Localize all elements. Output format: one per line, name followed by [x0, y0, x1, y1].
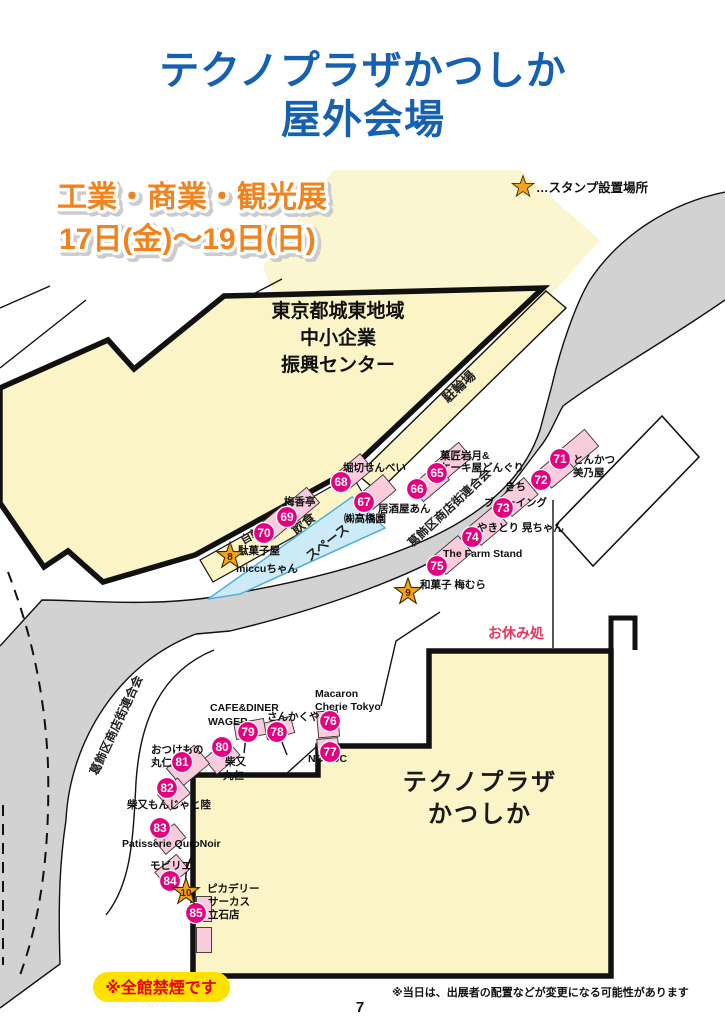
label-picadilly-2: サーカス: [208, 896, 250, 908]
svg-text:65: 65: [430, 466, 444, 480]
badge-68: 68: [331, 472, 352, 493]
svg-text:82: 82: [160, 781, 174, 795]
page-number: 7: [356, 999, 364, 1016]
label-patisserie: Patisserie QuroNoir: [122, 838, 221, 850]
label-monja: 柴又もんじゃと陸: [126, 798, 211, 811]
label-yakitori: やきとり 晃ちゃん: [477, 522, 564, 534]
label-tonkatsu-1: とんかつ: [573, 454, 615, 466]
badge-85: 85: [186, 903, 207, 924]
svg-text:68: 68: [334, 475, 348, 489]
shinko-label-1: 東京都城東地域: [271, 299, 404, 322]
label-umemura: 和菓子 梅むら: [419, 578, 486, 591]
stamp-star-9: 9: [395, 578, 422, 603]
badge-76: 76: [320, 711, 341, 732]
svg-text:71: 71: [553, 452, 567, 466]
svg-text:81: 81: [175, 755, 189, 769]
stamp-10-number: 10: [180, 888, 192, 899]
badge-73: 73: [493, 498, 514, 519]
svg-text:67: 67: [357, 495, 371, 509]
badge-78: 78: [267, 722, 288, 743]
badge-66: 66: [407, 479, 428, 500]
step-outline: [611, 618, 635, 650]
badge-74: 74: [462, 527, 483, 548]
badge-80: 80: [212, 737, 233, 758]
label-horikiri: 堀切せんべい: [343, 461, 406, 474]
label-kasho-2: ケーキ屋どんぐり: [440, 461, 524, 474]
svg-text:76: 76: [323, 714, 337, 728]
booth-extra: [197, 928, 212, 953]
no-smoking-text: ※全館禁煙です: [105, 978, 217, 997]
road-line-topleft-2: [0, 286, 50, 308]
label-shibamata-2: 丸仁: [222, 769, 244, 782]
svg-text:77: 77: [323, 745, 337, 759]
event-heading-line2: 17日(金)～19日(日): [59, 222, 316, 256]
technoplaza-building: [193, 651, 611, 976]
label-kasho-1: 菓匠岩月&: [439, 449, 490, 462]
shinko-label-3: 振興センター: [281, 353, 395, 376]
label-kichi-1: きち: [505, 481, 526, 493]
footer-note: ※当日は、出展者の配置などが変更になる可能性があります: [392, 985, 689, 999]
rest-area-label: お休み処: [488, 625, 545, 641]
badge-72: 72: [531, 470, 552, 491]
page-title-line1: テクノプラザかつしか: [159, 49, 567, 93]
event-heading-line1: 工業・商業・観光展: [57, 180, 327, 214]
badge-67: 67: [354, 492, 375, 513]
label-picadilly-3: 立石店: [208, 908, 240, 921]
svg-text:80: 80: [215, 740, 229, 754]
svg-text:74: 74: [465, 530, 479, 544]
badge-71: 71: [550, 449, 571, 470]
badge-70: 70: [254, 523, 275, 544]
svg-text:72: 72: [534, 473, 548, 487]
svg-text:70: 70: [257, 526, 271, 540]
label-takahashi: ㈱高橋園: [344, 512, 386, 525]
label-macaron-1: Macaron: [315, 688, 358, 700]
badge-77: 77: [320, 742, 341, 763]
label-tonkatsu-2: 美乃屋: [573, 466, 605, 479]
label-farm-stand: The Farm Stand: [443, 548, 522, 560]
badge-83: 83: [150, 818, 171, 839]
svg-text:66: 66: [410, 482, 424, 496]
label-otsukemono-2: 丸仁: [150, 756, 172, 769]
stamp-8-number: 8: [227, 552, 233, 563]
badge-79: 79: [238, 722, 259, 743]
svg-text:73: 73: [496, 501, 510, 515]
event-map-page: 葛飾区商店街連合会 葛飾区商店街連合会 駐輪場 東京都城東地域 中小企業 振興セ…: [0, 0, 725, 1024]
stamp-legend-text: …スタンプ設置場所: [536, 180, 649, 195]
page-title-line2: 屋外会場: [281, 98, 445, 142]
svg-text:78: 78: [270, 725, 284, 739]
svg-text:79: 79: [241, 725, 255, 739]
badge-81: 81: [172, 752, 193, 773]
label-dagashi-1: 駄菓子屋: [238, 544, 280, 557]
venue-map: 葛飾区商店街連合会 葛飾区商店街連合会 駐輪場 東京都城東地域 中小企業 振興セ…: [0, 0, 725, 1024]
label-dagashi-2: miccuちゃん: [236, 563, 298, 575]
badge-65: 65: [427, 463, 448, 484]
label-shibamata-1: 柴又: [224, 755, 246, 768]
svg-text:83: 83: [153, 821, 167, 835]
technoplaza-label-1: テクノプラザ: [403, 769, 558, 796]
stamp-9-number: 9: [405, 588, 411, 599]
svg-text:75: 75: [430, 559, 444, 573]
svg-text:69: 69: [280, 510, 294, 524]
badge-82: 82: [157, 778, 178, 799]
shinko-label-2: 中小企業: [300, 326, 377, 349]
svg-text:85: 85: [189, 906, 203, 920]
badge-75: 75: [427, 556, 448, 577]
badge-69: 69: [277, 507, 298, 528]
label-picadilly-1: ピカデリー: [207, 882, 260, 895]
technoplaza-label-2: かつしか: [428, 801, 532, 828]
svg-text:84: 84: [163, 874, 177, 888]
